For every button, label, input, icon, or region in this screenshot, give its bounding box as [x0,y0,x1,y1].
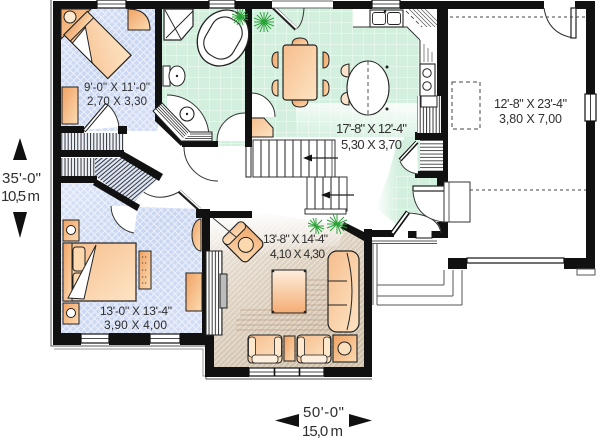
svg-text:17'-8" X 12'-4": 17'-8" X 12'-4" [336,121,407,136]
svg-text:15,0 m: 15,0 m [302,423,343,440]
svg-text:2,70 X 3,30: 2,70 X 3,30 [87,96,147,108]
svg-text:9'-0" X 11'-0": 9'-0" X 11'-0" [84,82,150,94]
svg-text:12'-8" X 23'-4": 12'-8" X 23'-4" [494,97,567,111]
svg-text:35'-0": 35'-0" [2,170,41,187]
svg-text:3,80 X 7,00: 3,80 X 7,00 [499,112,562,126]
svg-text:50'-0": 50'-0" [303,404,344,421]
svg-text:3,90 X 4,00: 3,90 X 4,00 [104,318,167,332]
svg-text:13'-8" X 14'-4": 13'-8" X 14'-4" [263,232,328,246]
svg-text:13'-0" X 13'-4": 13'-0" X 13'-4" [100,304,172,318]
svg-text:5,30 X 3,70: 5,30 X 3,70 [341,137,402,152]
svg-text:10,5 m: 10,5 m [1,188,40,205]
svg-text:4,10 X 4,30: 4,10 X 4,30 [270,247,325,261]
